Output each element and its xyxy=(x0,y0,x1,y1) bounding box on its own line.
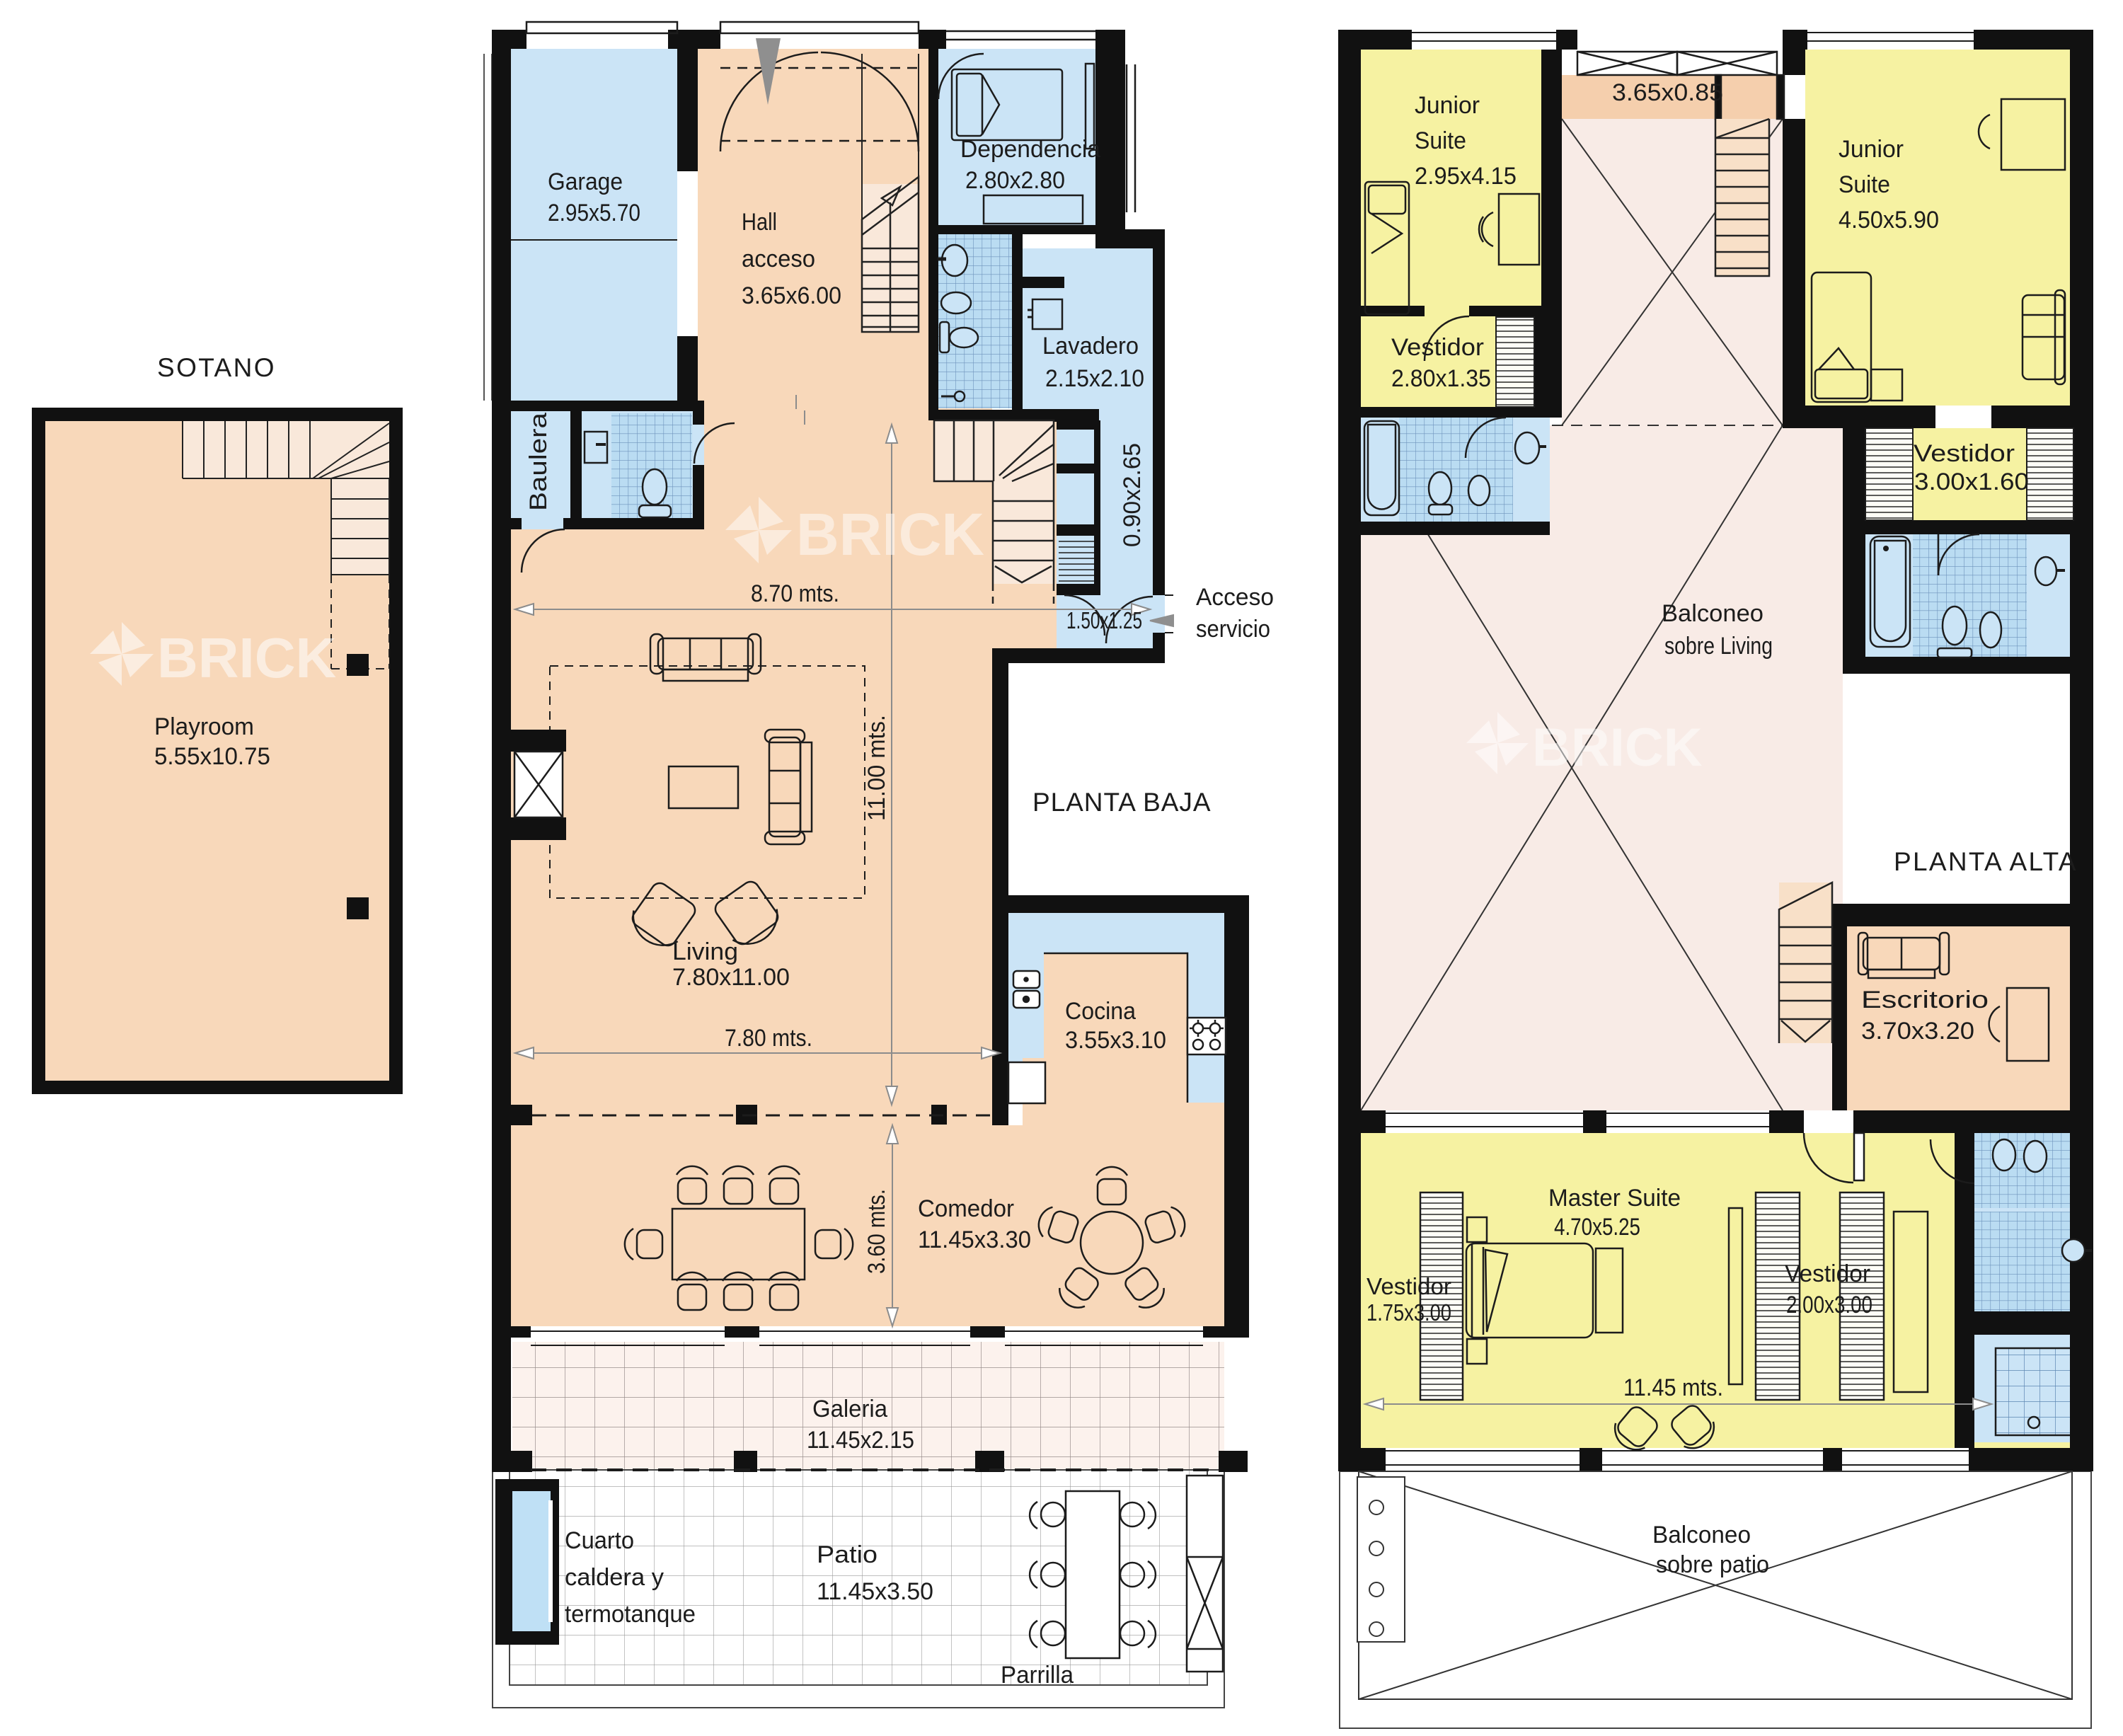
svg-text:Suite: Suite xyxy=(1415,127,1466,154)
svg-text:sobre Living: sobre Living xyxy=(1664,633,1773,660)
svg-text:7.80 mts.: 7.80 mts. xyxy=(725,1025,812,1052)
svg-text:2.80x1.35: 2.80x1.35 xyxy=(1391,365,1491,392)
svg-text:3.00x1.60: 3.00x1.60 xyxy=(1914,469,2029,495)
svg-text:3.70x3.20: 3.70x3.20 xyxy=(1861,1018,1974,1045)
svg-text:11.45x3.50: 11.45x3.50 xyxy=(817,1578,933,1605)
svg-text:Hall: Hall xyxy=(742,209,777,236)
svg-text:SOTANO: SOTANO xyxy=(157,353,276,382)
svg-text:Patio: Patio xyxy=(817,1541,878,1568)
svg-text:caldera y: caldera y xyxy=(565,1564,664,1591)
svg-text:Cocina: Cocina xyxy=(1065,998,1136,1025)
svg-text:Playroom: Playroom xyxy=(154,713,254,740)
svg-text:4.70x5.25: 4.70x5.25 xyxy=(1554,1214,1640,1241)
svg-text:Escritorio: Escritorio xyxy=(1861,987,1989,1013)
svg-text:Garage: Garage xyxy=(548,168,623,195)
svg-text:Vestidor: Vestidor xyxy=(1391,334,1484,361)
svg-text:11.45x2.15: 11.45x2.15 xyxy=(807,1427,914,1454)
svg-text:Balconeo: Balconeo xyxy=(1662,600,1764,627)
svg-text:4.50x5.90: 4.50x5.90 xyxy=(1839,207,1939,234)
svg-text:Vestidor: Vestidor xyxy=(1367,1273,1451,1299)
svg-text:11.00 mts.: 11.00 mts. xyxy=(863,715,890,821)
svg-text:servicio: servicio xyxy=(1196,616,1270,643)
svg-text:11.45x3.30: 11.45x3.30 xyxy=(918,1226,1031,1253)
svg-text:8.70 mts.: 8.70 mts. xyxy=(751,580,839,607)
svg-text:Vestidor: Vestidor xyxy=(1785,1260,1870,1287)
svg-text:PLANTA ALTA: PLANTA ALTA xyxy=(1894,847,2078,876)
svg-text:2.00x3.00: 2.00x3.00 xyxy=(1786,1292,1872,1318)
svg-text:Junior: Junior xyxy=(1415,92,1480,119)
svg-text:2.15x2.10: 2.15x2.10 xyxy=(1045,365,1144,392)
svg-text:5.55x10.75: 5.55x10.75 xyxy=(154,743,270,770)
svg-text:Vestidor: Vestidor xyxy=(1914,440,2015,467)
svg-text:BRICK: BRICK xyxy=(157,626,337,689)
svg-text:Suite: Suite xyxy=(1839,171,1890,198)
svg-text:Cuarto: Cuarto xyxy=(565,1527,634,1554)
svg-text:2.80x2.80: 2.80x2.80 xyxy=(965,167,1065,194)
svg-text:Lavadero: Lavadero xyxy=(1042,333,1139,360)
svg-text:acceso: acceso xyxy=(742,246,815,272)
svg-text:BRICK: BRICK xyxy=(1532,718,1703,778)
svg-text:PLANTA BAJA: PLANTA BAJA xyxy=(1032,788,1212,817)
svg-text:sobre patio: sobre patio xyxy=(1656,1551,1769,1578)
svg-text:Baulera: Baulera xyxy=(525,413,552,511)
svg-text:Acceso: Acceso xyxy=(1196,584,1274,611)
svg-text:0.90x2.65: 0.90x2.65 xyxy=(1119,443,1146,547)
svg-text:Junior: Junior xyxy=(1839,136,1904,163)
svg-text:7.80x11.00: 7.80x11.00 xyxy=(672,964,790,991)
svg-text:2.95x5.70: 2.95x5.70 xyxy=(548,200,640,226)
svg-text:3.65x0.85: 3.65x0.85 xyxy=(1612,79,1723,106)
svg-text:2.95x4.15: 2.95x4.15 xyxy=(1415,163,1517,190)
svg-text:Galeria: Galeria xyxy=(812,1396,887,1422)
svg-text:3.65x6.00: 3.65x6.00 xyxy=(742,282,841,309)
svg-text:Living: Living xyxy=(672,938,738,965)
svg-text:3.60 mts.: 3.60 mts. xyxy=(863,1189,890,1274)
svg-text:1.50x1.25: 1.50x1.25 xyxy=(1066,607,1142,633)
svg-text:Parrilla: Parrilla xyxy=(1001,1662,1074,1689)
svg-text:Comedor: Comedor xyxy=(918,1195,1014,1222)
svg-text:Dependencia: Dependencia xyxy=(960,136,1100,163)
svg-text:3.55x3.10: 3.55x3.10 xyxy=(1065,1027,1166,1054)
svg-text:Balconeo: Balconeo xyxy=(1652,1522,1751,1548)
svg-text:11.45 mts.: 11.45 mts. xyxy=(1623,1374,1723,1401)
svg-text:1.75x3.00: 1.75x3.00 xyxy=(1367,1299,1451,1326)
svg-text:Master Suite: Master Suite xyxy=(1548,1185,1681,1212)
svg-text:BRICK: BRICK xyxy=(796,501,984,568)
svg-text:termotanque: termotanque xyxy=(565,1601,696,1628)
